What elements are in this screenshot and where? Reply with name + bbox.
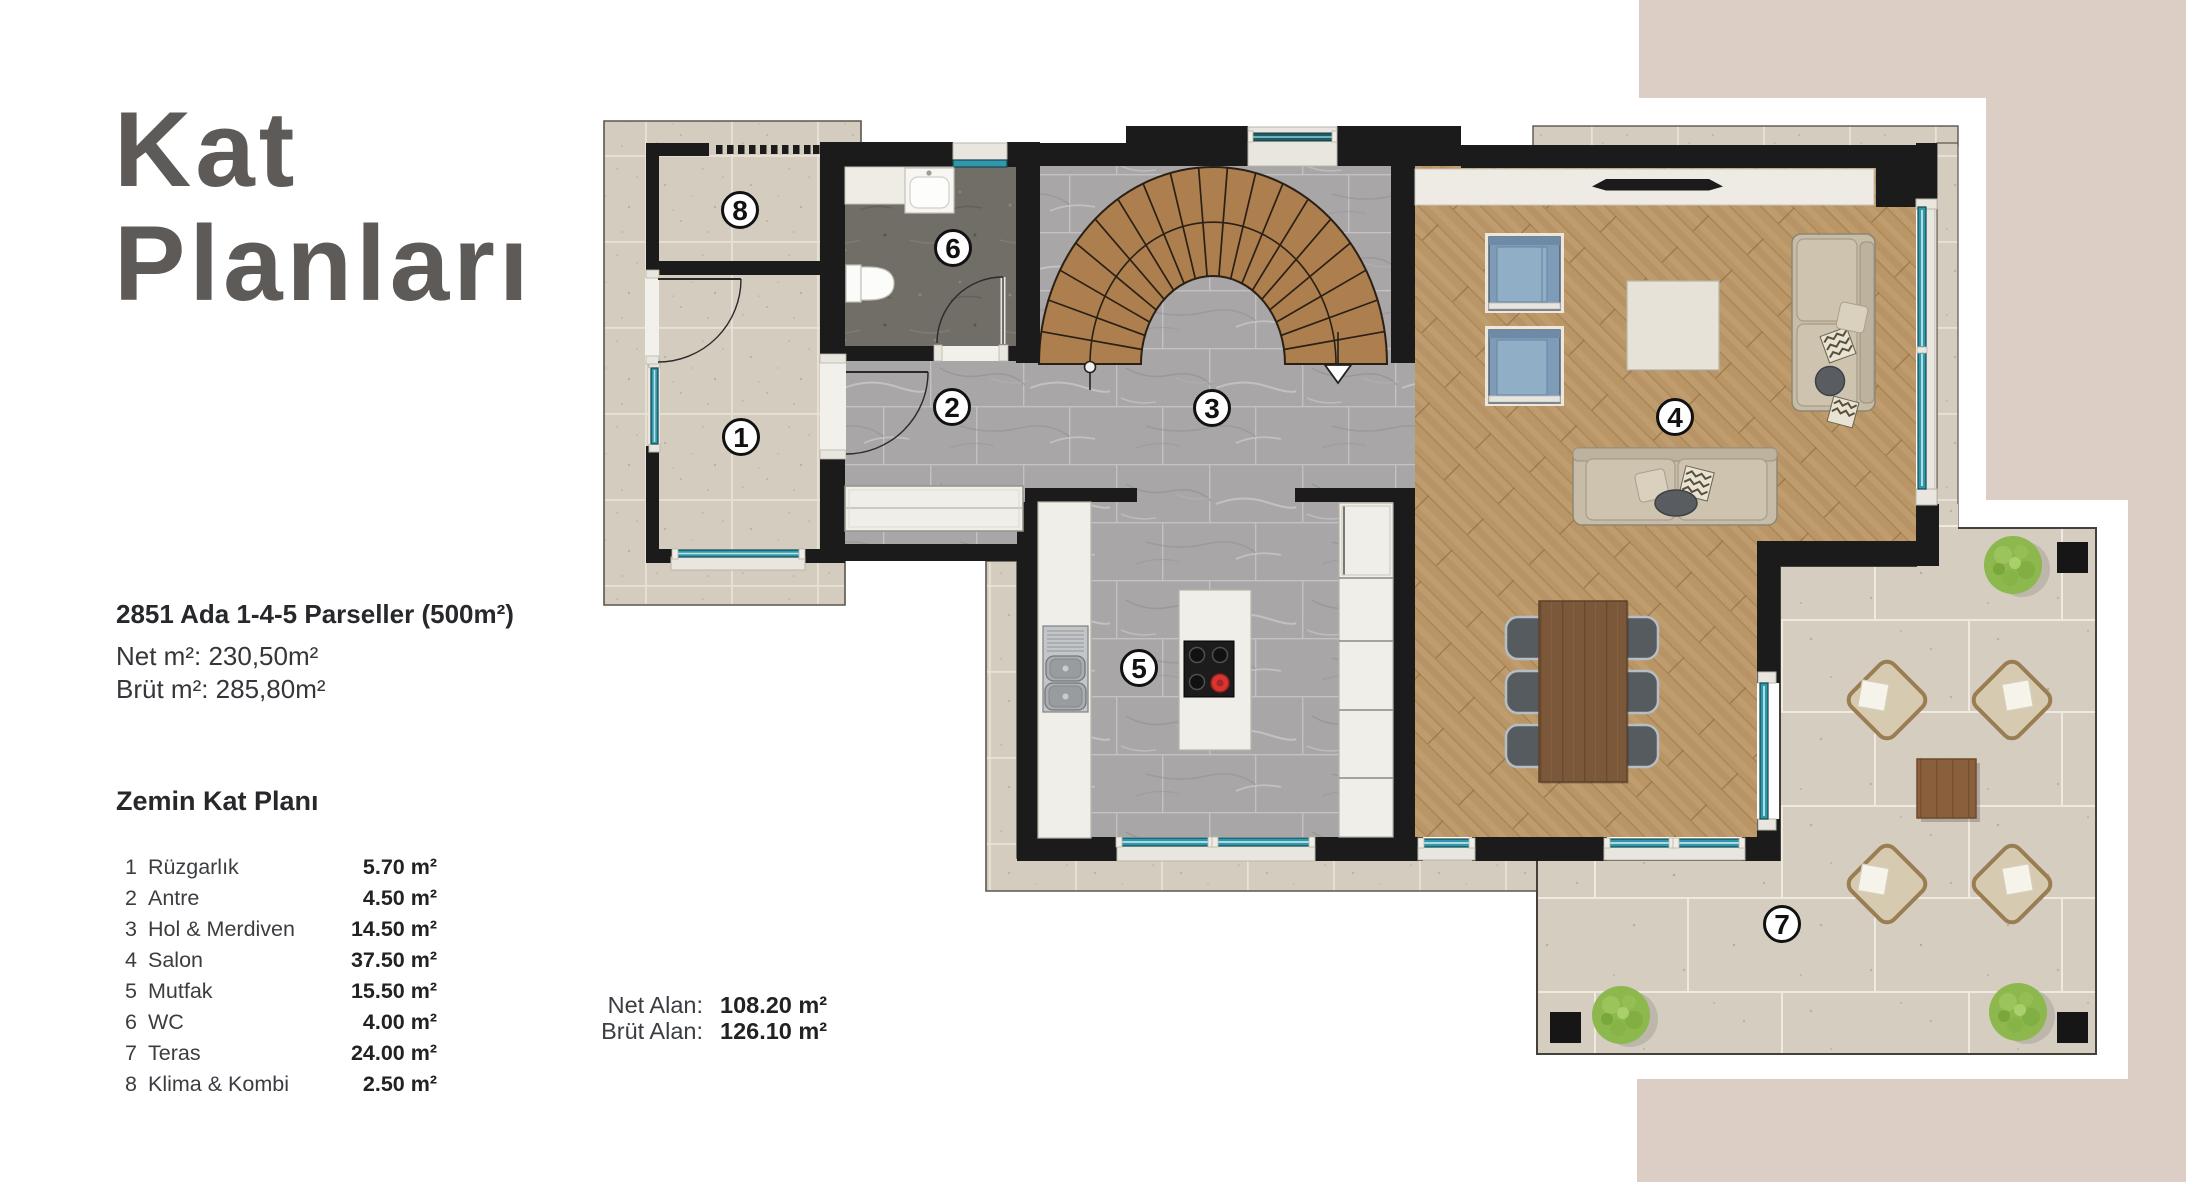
svg-text:Antre: Antre	[148, 886, 199, 910]
svg-text:7: 7	[125, 1041, 137, 1065]
svg-text:Net Alan:: Net Alan:	[608, 992, 703, 1018]
svg-text:2: 2	[944, 392, 960, 423]
svg-text:2851 Ada 1-4-5 Parseller (500m: 2851 Ada 1-4-5 Parseller (500m²)	[116, 599, 514, 629]
svg-text:15.50 m²: 15.50 m²	[351, 979, 437, 1003]
svg-text:Brüt m²: 285,80m²: Brüt m²: 285,80m²	[116, 674, 326, 704]
svg-text:Kat: Kat	[114, 89, 298, 209]
svg-text:Klima & Kombi: Klima & Kombi	[148, 1072, 289, 1096]
svg-text:Brüt Alan:: Brüt Alan:	[601, 1018, 703, 1044]
svg-text:3: 3	[1204, 393, 1220, 424]
svg-text:4.50 m²: 4.50 m²	[363, 886, 437, 910]
svg-text:4: 4	[125, 948, 137, 972]
svg-text:Mutfak: Mutfak	[148, 979, 213, 1003]
svg-text:4: 4	[1667, 402, 1683, 433]
svg-text:1: 1	[125, 855, 137, 879]
svg-text:1: 1	[733, 422, 749, 453]
svg-text:7: 7	[1774, 909, 1790, 940]
svg-text:3: 3	[125, 917, 137, 941]
svg-text:24.00 m²: 24.00 m²	[351, 1041, 437, 1065]
svg-text:Salon: Salon	[148, 948, 203, 972]
svg-text:Net m²: 230,50m²: Net m²: 230,50m²	[116, 641, 319, 671]
svg-text:5.70 m²: 5.70 m²	[363, 855, 437, 879]
svg-text:2.50 m²: 2.50 m²	[363, 1072, 437, 1096]
svg-text:14.50 m²: 14.50 m²	[351, 917, 437, 941]
svg-text:6: 6	[125, 1010, 137, 1034]
svg-text:Hol & Merdiven: Hol & Merdiven	[148, 917, 295, 941]
svg-text:37.50 m²: 37.50 m²	[351, 948, 437, 972]
svg-text:Teras: Teras	[148, 1041, 201, 1065]
svg-text:126.10 m²: 126.10 m²	[720, 1018, 827, 1044]
svg-text:108.20 m²: 108.20 m²	[720, 992, 827, 1018]
svg-text:WC: WC	[148, 1010, 184, 1034]
svg-text:5: 5	[125, 979, 137, 1003]
svg-text:8: 8	[125, 1072, 137, 1096]
svg-text:Planları: Planları	[114, 203, 533, 323]
svg-text:8: 8	[732, 195, 748, 226]
svg-text:4.00 m²: 4.00 m²	[363, 1010, 437, 1034]
svg-text:5: 5	[1131, 653, 1147, 684]
svg-text:Zemin Kat Planı: Zemin Kat Planı	[116, 786, 319, 816]
svg-text:Rüzgarlık: Rüzgarlık	[148, 855, 239, 879]
svg-text:2: 2	[125, 886, 137, 910]
svg-text:6: 6	[945, 233, 961, 264]
